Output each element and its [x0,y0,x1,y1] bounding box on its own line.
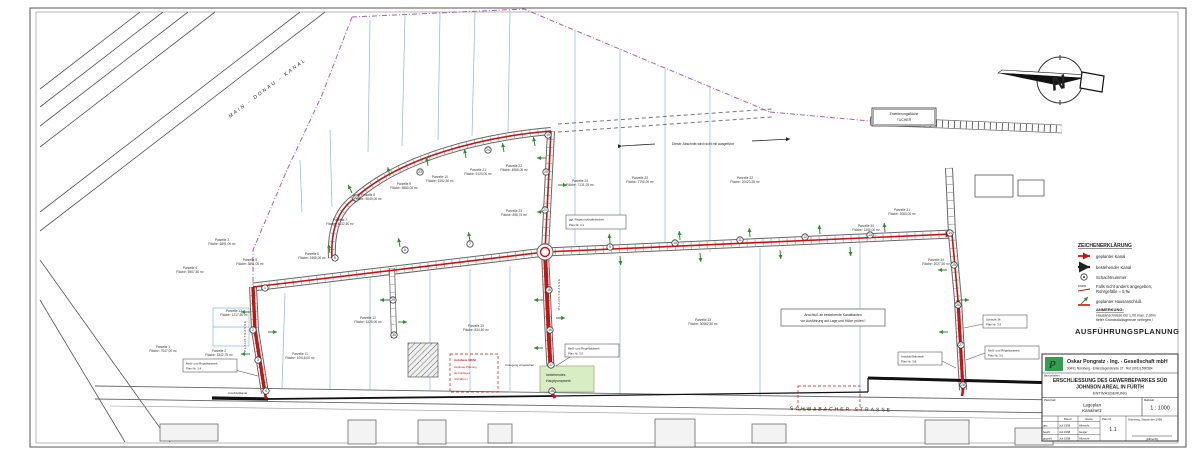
house-connection-arrow [464,149,466,158]
parcel-label: Parzelle 7Fläche: 4132,50 m² [326,218,353,226]
plan-no-label: Plan Nr. [1102,417,1112,421]
house-connection-arrow [780,250,781,259]
house-connection-arrow [398,238,400,247]
legend-note-2: tiefer Grundstücksgrenze verlegen ! [1096,318,1153,322]
content-line-2: Kanalnetz [1082,408,1102,413]
autohaus-label-3: als künftiges [454,371,471,375]
shaft-number: 23 [418,170,422,174]
mess34-label-2: Plan Nr. 3.4 [186,367,201,371]
parcel-label: Parzelle 31Fläche: 3060,00 m² [888,208,915,216]
autohaus-label-1: Autohaus GRAF [454,358,477,362]
rrb-label-1: ggf. Regenrückhaltebecken [569,218,605,222]
umlegung-label: Umlegung vorgesehen [505,363,534,367]
parcel-label: Parzelle 23Fläche: 898,75 m² [501,209,527,217]
erweiterung-box: Erweiterungsfläche TUCHER [872,108,936,126]
check-note-1: Anschluß an bestehende Kanalbauten [804,313,862,317]
shaft-number: 20 [544,170,548,174]
shaft-number: 6 [404,248,406,252]
date-note: Nürnberg, September 1998 [1128,418,1162,422]
mess35-label-2: Plan Nr. 3.5 [568,352,583,356]
house-connection-arrow [850,247,851,256]
pump-station-label-2: Hauptpumpwerk [546,379,571,383]
parcel-label: Parzelle 33Fläche: 30562,50 m² [688,318,717,326]
company-name: Oskar Pongratz - Ing. - Gesellschaft mbH [1067,359,1168,365]
parcel-label: Parzelle 6Fläche: 2465,00 m² [298,252,325,260]
erweiterung-label-1: Erweiterungsfläche [890,112,919,116]
existing-hatched-building [408,343,438,377]
autohaus-label-4: Vorhaben ! [454,377,468,381]
shaft-number: 26 [956,303,960,307]
erweiterung-label-2: TUCHER [897,118,912,122]
rrb-label-2: Plan Nr. 3.1 [569,223,584,227]
legend-note-title: ANMERKUNG: [1096,307,1124,312]
shaft-number: 21 [543,208,547,212]
north-arrow: N [998,55,1104,105]
shaft-number: 17 [549,363,553,367]
plan-no-value: 1.1 [1109,427,1117,433]
shaft-number: 10 [673,241,677,245]
shaft-number: 2 [252,328,254,332]
shaft-number: 7 [469,242,471,246]
not-executed-note: Dieser Abschnitt wird nicht mit ausgefüh… [672,142,734,146]
shaft-number: 16 [548,328,552,332]
parcel-label: Parzelle 1Fläche: 7047,00 m² [149,345,176,353]
shaft-number: 3 [257,358,259,362]
railway-strip [870,117,1062,197]
row2-who: bearb. [1043,430,1051,434]
shaft-number: 15 [547,288,551,292]
parcel-label: Parzelle 13Fläche: 1217,50 m² [220,309,247,317]
parcel-label: Parzelle 24Fläche: 7131,25 m² [566,179,593,187]
legend-title: ZEICHENERKLÄRUNG [1078,242,1132,249]
legend-item-3: Schachtnummer [1096,275,1127,280]
company-address: 90491 Nürnberg · Erlenstegenstraße 37 · … [1067,367,1153,371]
house-connection-arrow [819,225,820,234]
project-line-2: JOHNSON AREAL IN FÜRTH [1076,384,1144,391]
svg-text:DN300: DN300 [1078,284,1087,288]
legend-item-4b: Rohrgefälle = 5 ‰ [1096,289,1131,294]
stage-label: AUSFÜHRUNGSPLANUNG [1075,327,1179,336]
shaft-number: 25 [952,263,956,267]
shaft-number: 28 [961,383,965,387]
road-name-mid: PLANSTRASSE [557,278,561,310]
road-main-ew [253,234,952,287]
col-date: Datum [1064,417,1073,421]
schacht39-label-2: Plan Nr. 3.9 [986,323,1001,327]
shaft-number: 29 [391,298,395,302]
parcel-label: Parzelle 22Fläche: 4966,00 m² [500,164,527,172]
planned-canal [253,131,963,399]
row3-name: Albrecht [1079,437,1089,441]
legend-item-5: geplanter Hausanschluß [1096,299,1142,304]
parcel-label: Parzelle 34Fläche: 2027,50 m² [922,258,949,266]
mess35-label-1: Meß- und Regelbauwerk [568,347,600,351]
anschluss38-box: Anschlußbauwerk Plan Nr. 3.8 [898,352,956,368]
row3-date: Juli 1998 [1059,437,1071,441]
house-connection-arrow [348,185,352,193]
scale-label: Maßstab: [1144,398,1155,402]
pump-station-label-1: bestehendes [546,373,566,377]
check-note-2: vor Ausführung auf Lage und Höhe prüfen … [800,319,865,323]
shaft-number: 24 [486,148,490,152]
legend-item-1: geplanter Kanal [1096,254,1125,259]
mess35-box: Meß- und Regelbauwerk Plan Nr. 3.5 [556,344,619,366]
shaft-number: 14 [948,231,952,235]
canal-ew-east [545,234,952,252]
shaft-number: 27 [959,343,963,347]
row2-name: Geiger [1079,430,1087,434]
shaft-number: 5 [334,256,336,260]
row1-name: Albrecht [1079,424,1089,428]
road-name-left: PLANSTRASSE [243,320,247,352]
schacht39-label-1: Schacht 36 [986,318,1001,322]
parcel-label: Parzelle 10Fläche: 6162,50 m² [426,175,453,183]
anschluss38-label-2: Plan Nr. 3.8 [901,360,916,364]
mess34-label-1: Meß- und Regelbauwerk [186,362,218,366]
parcel-label: Parzelle 9Fläche: 5880,00 m² [390,182,417,190]
section-label: ENTWÄSSERUNG [1093,391,1127,396]
parcel-lines [213,10,860,398]
shaft-number: 11 [738,238,742,242]
pipe-slope-symbol-icon [1078,289,1090,291]
row1-who: gez. [1043,424,1049,428]
parcel-label: Parzelle 12Fläche: 6125,00 m² [354,316,381,324]
existing-canal [212,378,1060,399]
company-logo-letter: P [1048,359,1056,371]
house-connection-arrow [884,223,885,232]
schacht39-box: Schacht 36 Plan Nr. 3.9 [964,315,1027,328]
parcel-label: Parzelle 3Fläche: 6891,00 m² [208,238,235,246]
project-label: Bauvorhaben: [1044,374,1060,378]
house-connection-arrow [749,228,750,237]
house-connection-arrow [609,234,610,243]
anschlusskanal-label: Anschlußkanal [228,391,247,395]
parcel-label: Parzelle 30Fläche: 1260,00 m² [852,224,879,232]
house-connection-arrow [502,143,504,152]
mess34-box: Meß- und Regelbauwerk Plan Nr. 3.4 [183,359,258,376]
row1-date: Juli 1998 [1059,424,1071,428]
parcel-label: Parzelle 21Fläche: 5125,00 m² [464,168,491,176]
title-block: P Oskar Pongratz - Ing. - Gesellschaft m… [1042,354,1178,441]
shaft-number: 12 [803,235,807,239]
shaft-number: 9 [609,245,611,249]
house-connection-arrow [700,253,701,262]
shaft-number: 4 [265,389,267,393]
legend: ZEICHENERKLÄRUNG geplanter Kanal bestehe… [1078,242,1156,322]
main-donau-kanal-label: MAIN - DONAU - KANAL [228,57,308,119]
parcel-label: Parzelle 29Fläche: 834,50 m² [463,324,489,332]
house-connection-arrow [533,137,535,146]
parcel-label: Parzelle 5Fläche: 3891,00 m² [236,258,263,266]
col-name: Name [1085,417,1093,421]
legend-item-2: bestehender Kanal [1096,265,1131,270]
parcel-label: Parzelle 32Fläche: 20023,25 m² [730,176,759,184]
pump-station-area: bestehendes Hauptpumpwerk [540,366,594,392]
shaft-number: 13 [868,233,872,237]
shaft-number: 1 [264,286,266,290]
mess36-label-1: Meß- und Regelbauwerk [988,349,1020,353]
row3-who: geprüft [1043,437,1052,441]
signature: (Albrecht) [1146,437,1158,441]
anschluss38-label-1: Anschlußbauwerk [901,355,925,359]
legend-note-1: Hausanschlüsse bis 1,00 max. 2,00m [1096,314,1156,318]
content-line-1: Lageplan [1083,403,1102,408]
canal-ew-west [253,252,545,287]
mess36-box: Meß- und Regelbauwerk Plan Nr. 3.6 [966,346,1039,360]
parcel-label: Parzelle 11Fläche: 10018,00 m² [285,352,314,360]
check-note-box: Anschluß an bestehende Kanalbauten vor A… [781,309,885,326]
roundabout [537,244,553,260]
house-connection-arrow-icon [1081,297,1088,304]
content-label: Planinhalt: [1044,398,1056,402]
rrb-box: ggf. Regenrückhaltebecken Plan Nr. 3.1 [566,215,626,229]
mess36-label-2: Plan Nr. 3.6 [988,354,1003,358]
project-line-1: ERSCHLIESSUNG DES GEWERBEPARKES SÜD [1053,377,1168,384]
house-connection-arrow [468,232,470,241]
autohaus-label-2: separate Planung [454,365,477,369]
parcel-label: Parzelle 2Fläche: 3342,75 m² [205,349,232,357]
row2-date: Juli 1998 [1059,430,1071,434]
autohaus-box: Autohaus GRAF separate Planung als künft… [450,354,498,392]
shaft-number: 30 [392,333,396,337]
parcel-label: Parzelle 4Fläche: 5907,50 m² [176,266,203,274]
plan-sheet: MAIN - DONAU - KANAL [0,0,1200,455]
shaft-number: 19 [546,133,550,137]
scale-value: 1 : 1000 [1150,406,1169,412]
shaft-number: 18 [550,389,554,393]
site-plan-drawing: MAIN - DONAU - KANAL [0,0,1200,455]
house-connection-arrow [679,231,680,240]
parcel-label: Parzelle 25Fläche: 7790,00 m² [626,176,653,184]
